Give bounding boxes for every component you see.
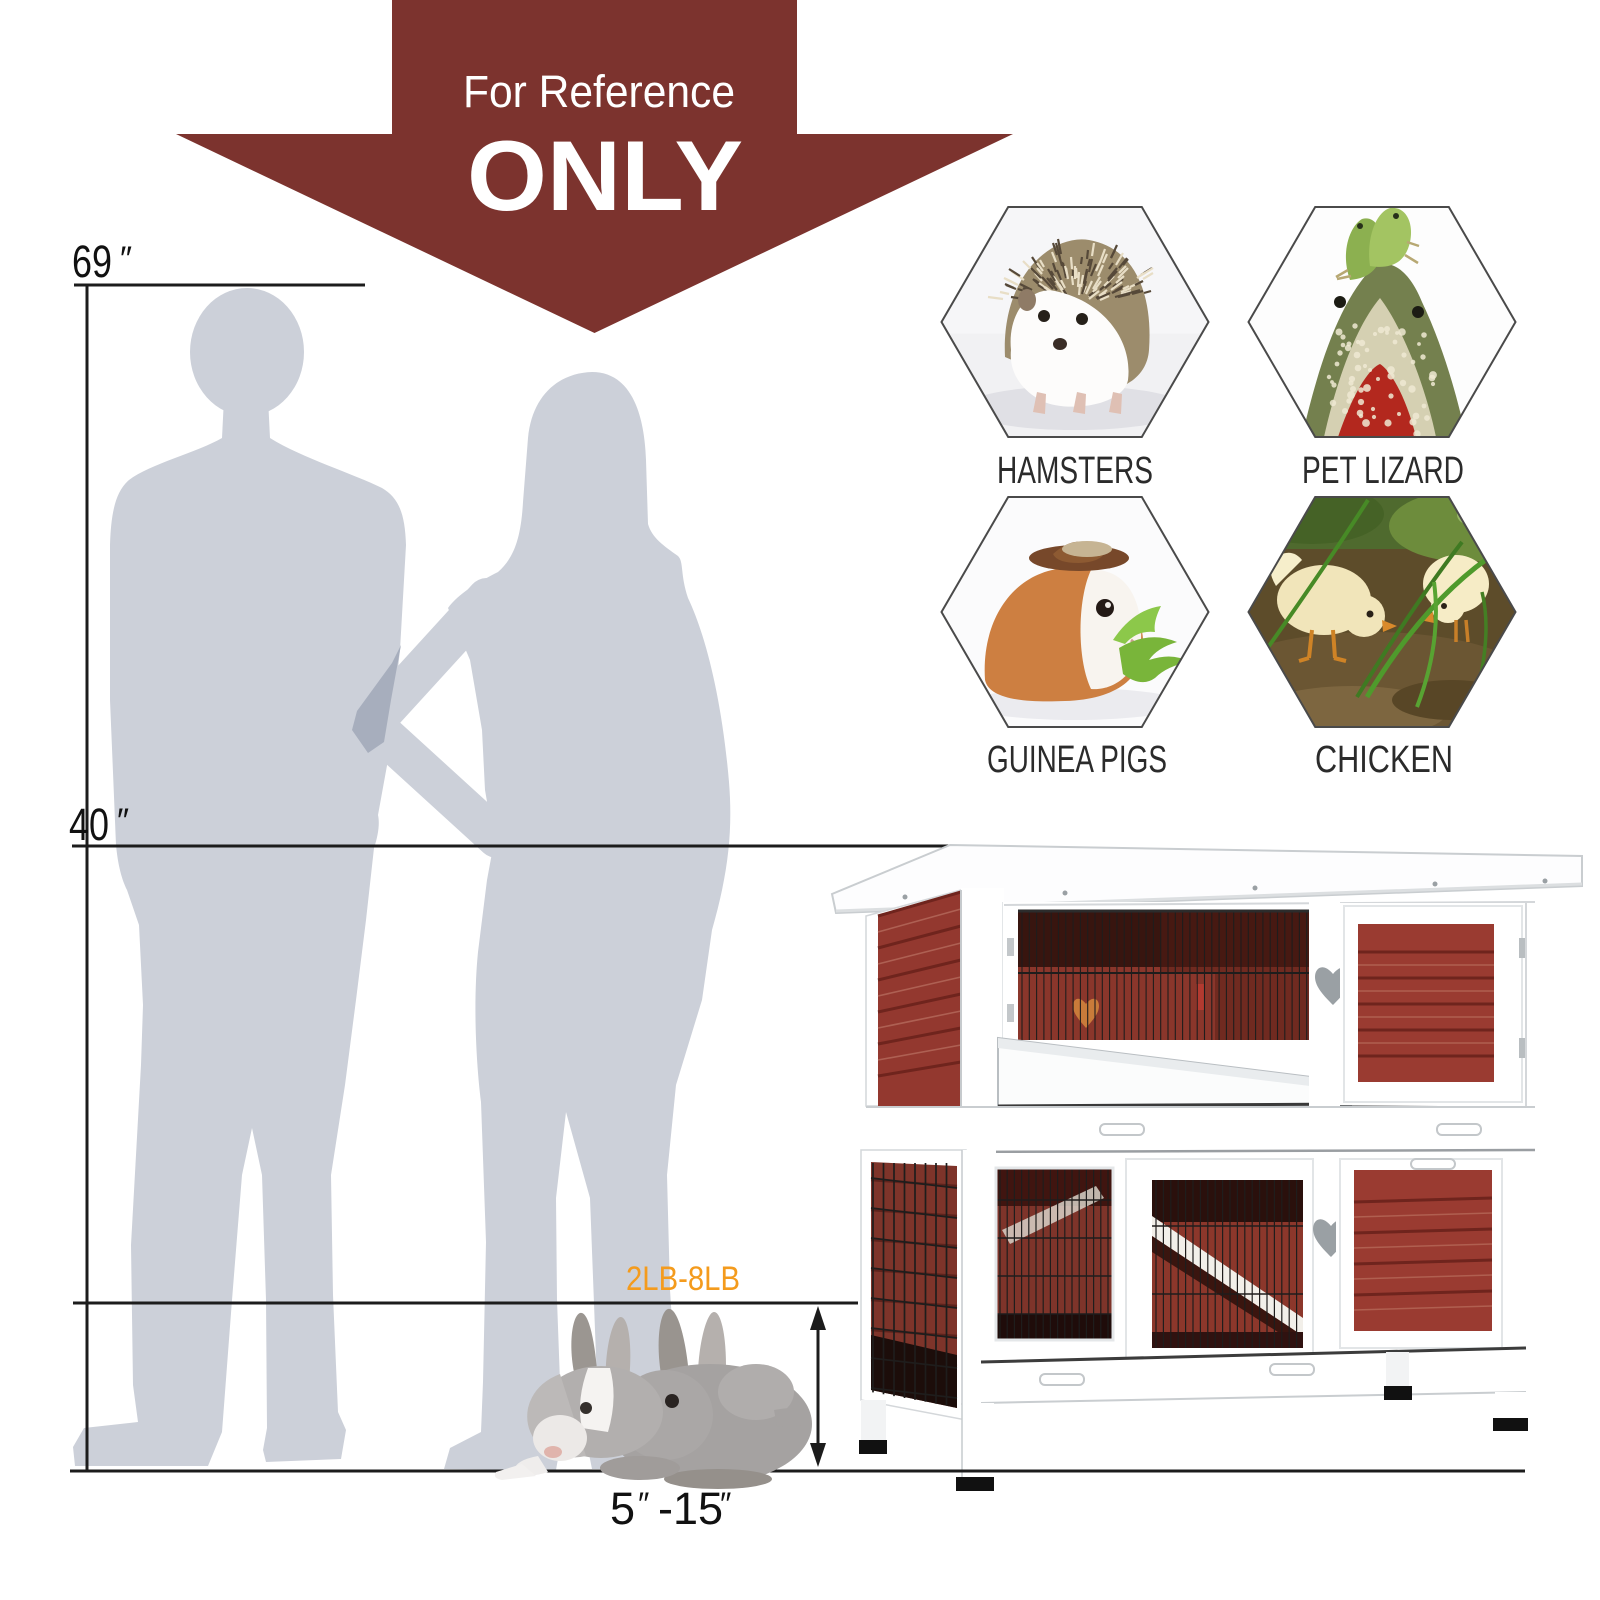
svg-text:For Reference: For Reference: [463, 66, 735, 117]
svg-text:GUINEA PIGS: GUINEA PIGS: [987, 739, 1167, 781]
svg-text:″: ″: [120, 240, 132, 278]
svg-text:69: 69: [72, 236, 112, 287]
svg-text:HAMSTERS: HAMSTERS: [997, 450, 1153, 492]
svg-text:ONLY: ONLY: [467, 120, 743, 231]
svg-text:″: ″: [720, 1486, 731, 1522]
svg-text:5: 5: [610, 1483, 635, 1534]
svg-text:2LB-8LB: 2LB-8LB: [626, 1260, 740, 1298]
svg-text:PET LIZARD: PET LIZARD: [1302, 450, 1464, 492]
svg-text:″: ″: [117, 802, 129, 840]
svg-text:″: ″: [638, 1486, 649, 1522]
svg-text:-15: -15: [658, 1483, 723, 1534]
svg-text:CHICKEN: CHICKEN: [1315, 739, 1453, 781]
svg-text:40: 40: [69, 799, 109, 850]
